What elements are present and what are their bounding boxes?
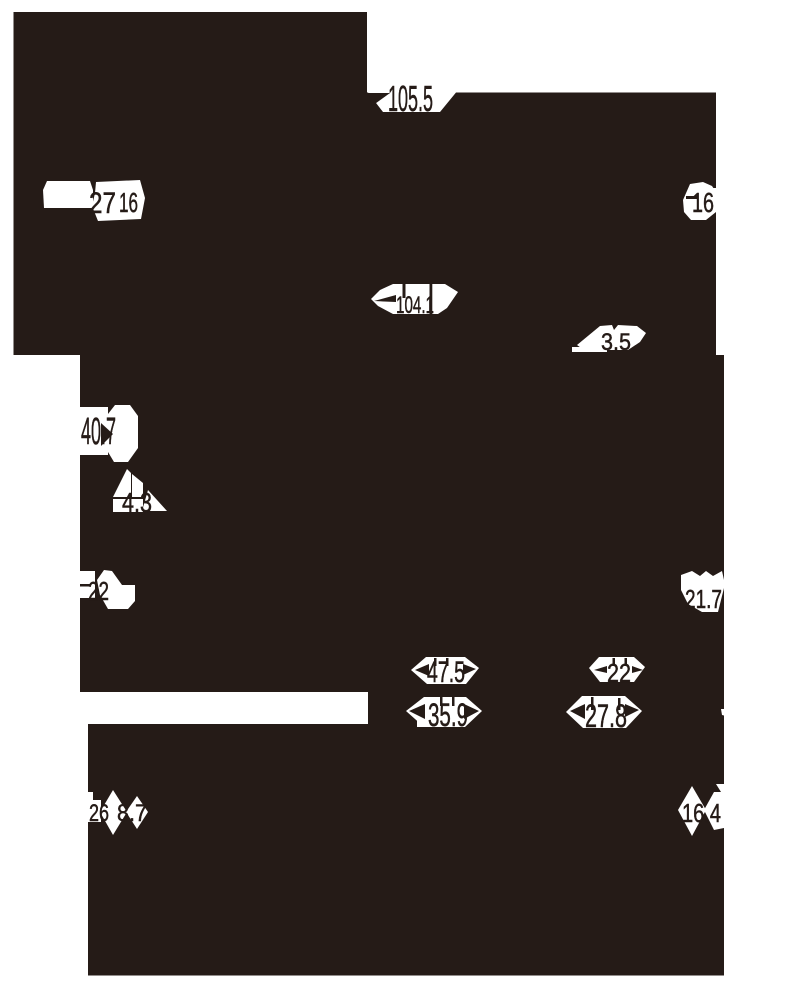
svg-text:22: 22: [88, 576, 109, 606]
svg-text:27.8: 27.8: [585, 698, 627, 734]
svg-text:27: 27: [89, 187, 116, 220]
svg-text:26: 26: [89, 800, 109, 827]
svg-text:21.7: 21.7: [685, 584, 722, 614]
svg-text:47.5: 47.5: [427, 656, 465, 689]
svg-text:35.9: 35.9: [428, 697, 468, 733]
svg-text:40.7: 40.7: [81, 411, 116, 453]
svg-text:16: 16: [119, 187, 138, 218]
svg-text:105.5: 105.5: [388, 78, 433, 119]
svg-text:4.3: 4.3: [122, 487, 152, 518]
svg-text:22: 22: [607, 658, 631, 688]
svg-text:8.7: 8.7: [117, 800, 147, 827]
svg-text:16.4: 16.4: [682, 798, 721, 828]
svg-text:104.1: 104.1: [396, 292, 434, 319]
svg-text:3.5: 3.5: [601, 329, 631, 356]
svg-text:16: 16: [692, 187, 714, 218]
